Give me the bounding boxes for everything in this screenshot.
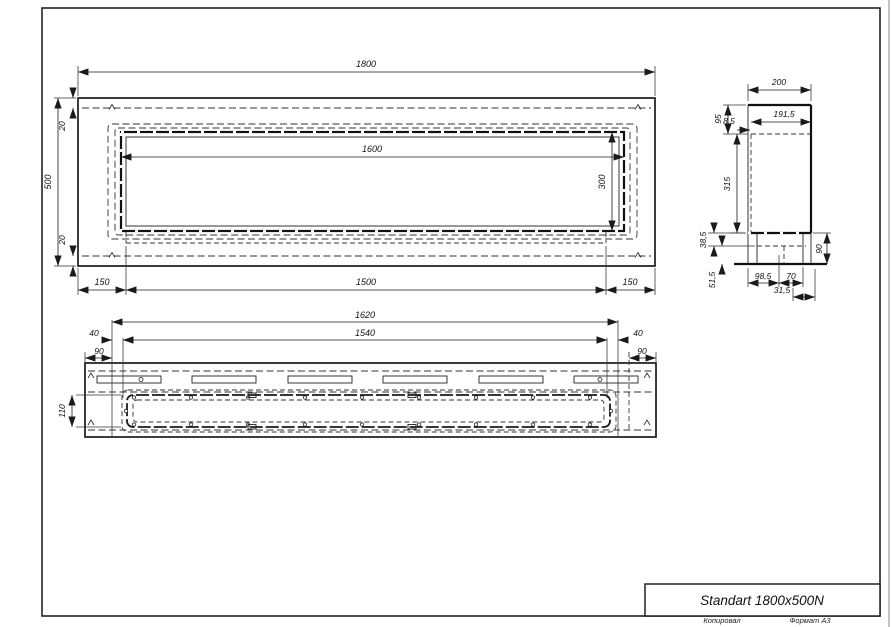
weld-mark-icon bbox=[88, 420, 94, 425]
weld-mark-icon bbox=[644, 420, 650, 425]
dim-bottom-inner-span: 1540 bbox=[355, 328, 375, 338]
footer-format-label: Формат А3 bbox=[789, 616, 831, 625]
weld-mark-icon bbox=[109, 105, 115, 110]
screw-hole-icon bbox=[139, 378, 143, 382]
weld-mark-icon bbox=[635, 253, 641, 258]
side-view: 200 191,5 8,5 95 315 38,5 51,5 90 bbox=[698, 77, 831, 301]
title-block: Standart 1800x500N bbox=[645, 584, 880, 616]
dim-side-inner-width: 191,5 bbox=[773, 109, 795, 119]
dim-top-edge-bottom: 20 bbox=[57, 235, 67, 246]
dim-side-51: 51,5 bbox=[707, 271, 717, 288]
dim-side-98: 98,5 bbox=[755, 271, 772, 281]
dim-bottom-tray-depth: 110 bbox=[57, 404, 67, 418]
weld-mark-icon bbox=[635, 105, 641, 110]
dim-side-31: 31,5 bbox=[774, 285, 791, 295]
drawing-frame bbox=[42, 0, 889, 627]
weld-mark-icon bbox=[644, 373, 650, 378]
dim-top-overall-width: 1800 bbox=[356, 59, 376, 69]
dim-top-overall-depth: 500 bbox=[43, 174, 53, 189]
footer-copied-by-label: Копировал bbox=[703, 616, 741, 625]
title-block-product-name: Standart 1800x500N bbox=[700, 593, 824, 608]
dim-bottom-outer-span: 1620 bbox=[355, 310, 375, 320]
drawing-sheet: 1800 500 20 20 150 1500 150 1600 300 bbox=[0, 0, 892, 627]
dim-top-offset-left: 150 bbox=[94, 277, 109, 287]
dim-bottom-left-40: 40 bbox=[89, 328, 99, 338]
dim-side-lip: 8,5 bbox=[723, 116, 735, 126]
dim-side-body: 315 bbox=[722, 177, 732, 191]
bottom-view: 1620 1540 40 90 40 90 110 bbox=[57, 310, 656, 437]
dim-top-offset-right: 150 bbox=[622, 277, 637, 287]
dim-top-opening-depth: 300 bbox=[597, 174, 607, 189]
dim-side-70: 70 bbox=[786, 271, 796, 281]
dim-top-opening-width: 1600 bbox=[362, 144, 382, 154]
top-view: 1800 500 20 20 150 1500 150 1600 300 bbox=[43, 59, 655, 295]
weld-mark-icon bbox=[88, 373, 94, 378]
dim-bottom-right-40: 40 bbox=[633, 328, 643, 338]
dim-bottom-left-90: 90 bbox=[94, 346, 104, 356]
engineering-drawing: 1800 500 20 20 150 1500 150 1600 300 bbox=[0, 0, 892, 627]
dim-top-burner-length: 1500 bbox=[356, 277, 376, 287]
screw-hole-icon bbox=[598, 378, 602, 382]
dim-bottom-right-90: 90 bbox=[637, 346, 647, 356]
dim-side-90: 90 bbox=[814, 244, 824, 254]
sheet-footer: Копировал Формат А3 bbox=[703, 616, 831, 625]
weld-mark-icon bbox=[109, 253, 115, 258]
dim-top-edge-top: 20 bbox=[57, 121, 67, 132]
tray-tabs bbox=[248, 393, 416, 429]
dim-side-top-inset: 95 bbox=[713, 114, 723, 124]
dim-side-38: 38,5 bbox=[698, 231, 708, 248]
dim-side-width: 200 bbox=[771, 77, 786, 87]
